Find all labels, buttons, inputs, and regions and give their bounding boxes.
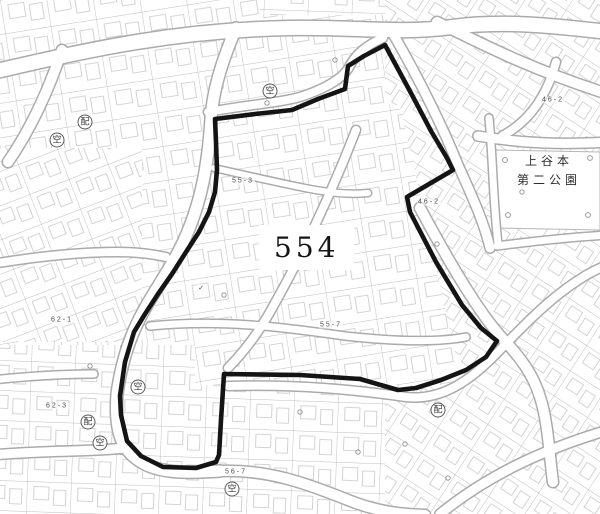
park-area bbox=[494, 150, 600, 230]
cadastral-map-canvas[interactable] bbox=[0, 0, 600, 514]
map-viewport[interactable]: 554 上谷本 第二公園 46-255-346-262-155-762-356-… bbox=[0, 0, 600, 514]
